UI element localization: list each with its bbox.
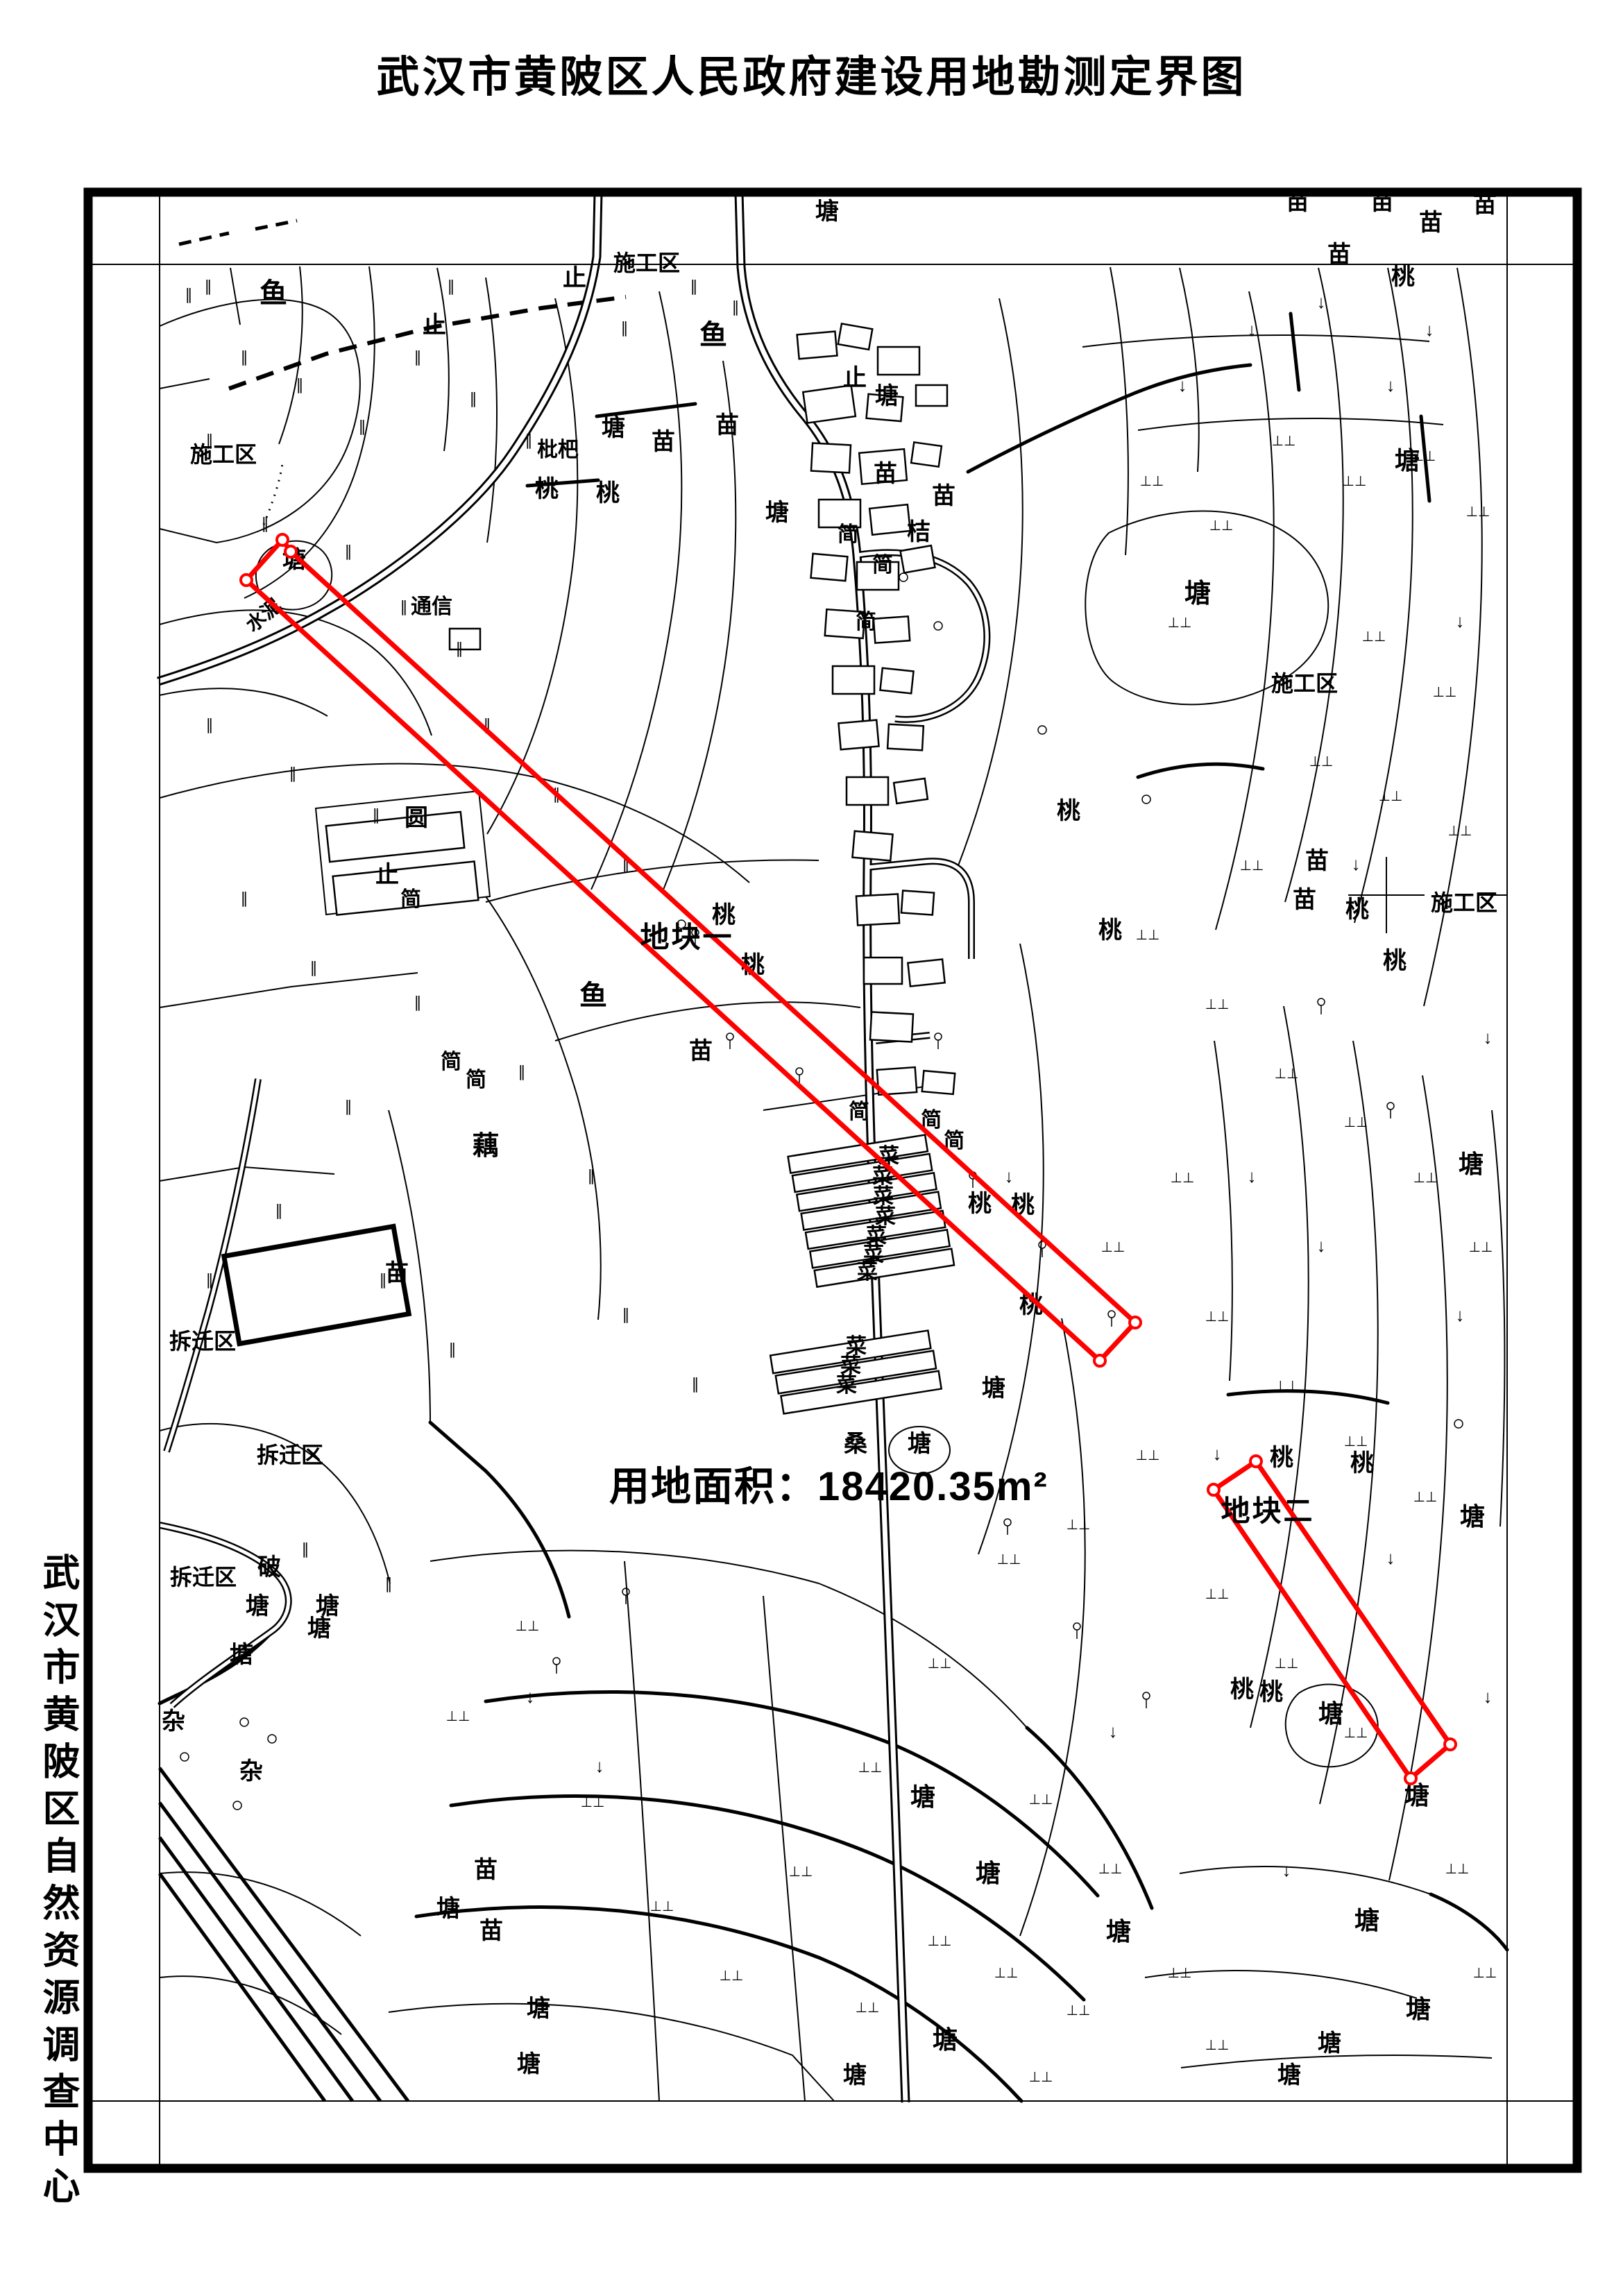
boundary-point-icon bbox=[1250, 1456, 1261, 1467]
map-label: 简 bbox=[856, 610, 876, 633]
arrow-symbol-icon: ↓ bbox=[595, 1755, 604, 1776]
map-label: 苗 bbox=[474, 1857, 498, 1883]
arrow-symbol-icon: ↓ bbox=[1282, 1860, 1291, 1880]
paddy-symbol-icon: ⊥⊥ bbox=[1343, 474, 1367, 489]
map-label: 塘 bbox=[875, 383, 899, 409]
map-label: 鱼 bbox=[579, 980, 607, 1011]
paddy-symbol-icon: ⊥⊥ bbox=[1205, 997, 1230, 1012]
tree-symbol-icon bbox=[726, 1033, 733, 1040]
map-label: 苗 bbox=[932, 483, 955, 509]
map-label: 桃 bbox=[535, 476, 559, 502]
map-label: 桔 bbox=[907, 519, 931, 545]
paddy-symbol-icon: ⊥⊥ bbox=[1067, 2003, 1091, 2018]
paddy-symbol-icon: ⊥⊥ bbox=[1344, 1434, 1368, 1449]
dryland-symbol-icon: ∥ bbox=[385, 1575, 393, 1592]
map-label: 塘 bbox=[910, 1783, 935, 1811]
paddy-symbol-icon: ⊥⊥ bbox=[720, 1968, 744, 1984]
map-label: 桃 bbox=[596, 480, 620, 507]
dryland-symbol-icon: ∥ bbox=[359, 418, 366, 435]
dryland-symbol-icon: ∥ bbox=[296, 376, 304, 393]
map-label: 塘 bbox=[1404, 1781, 1429, 1810]
map-label: 桃 bbox=[1230, 1676, 1254, 1703]
paddy-symbol-icon: ⊥⊥ bbox=[1362, 629, 1386, 645]
map-label: 简 bbox=[441, 1050, 461, 1073]
dryland-symbol-icon: ∥ bbox=[692, 1375, 699, 1393]
paddy-symbol-icon: ⊥⊥ bbox=[1275, 1379, 1299, 1394]
tree-symbol-icon bbox=[935, 1033, 942, 1040]
arrow-symbol-icon: ↓ bbox=[1484, 1027, 1493, 1048]
map-label: 鱼 bbox=[699, 320, 727, 350]
map-label: 止 bbox=[423, 312, 446, 339]
map-label: 苗 bbox=[715, 412, 739, 439]
dryland-symbol-icon: ∥ bbox=[414, 348, 422, 366]
paddy-symbol-icon: ⊥⊥ bbox=[1205, 1587, 1230, 1602]
map-label: 止 bbox=[375, 862, 399, 888]
map-label: 塘 bbox=[230, 1642, 253, 1668]
map-label: 桃 bbox=[1270, 1445, 1293, 1471]
landuse-labels: 鱼止止施工区鱼塘苗苗枇杷桃桃施工区塘通信水泥塘塘止苗苗桔塘简简简塘苗苗苗苗苗桃塘… bbox=[162, 189, 1497, 2089]
boundary-point-icon bbox=[1130, 1317, 1141, 1328]
map-label: 桃 bbox=[1345, 896, 1369, 923]
map-label: 苗 bbox=[874, 461, 897, 487]
tree-symbol-icon bbox=[1073, 1623, 1080, 1630]
arrow-symbol-icon: ↓ bbox=[1005, 1166, 1014, 1187]
map-label: 塘 bbox=[1277, 2062, 1301, 2089]
map-label: 苗 bbox=[1293, 887, 1316, 913]
dryland-symbol-icon: ∥ bbox=[456, 640, 464, 657]
circle-symbol-icon bbox=[1038, 726, 1046, 734]
paddy-symbol-icon: ⊥⊥ bbox=[1140, 474, 1164, 489]
dryland-symbol-icon: ∥ bbox=[310, 959, 318, 976]
dryland-symbol-icon: ∥ bbox=[621, 319, 629, 337]
paddy-symbol-icon: ⊥⊥ bbox=[1275, 1066, 1299, 1082]
map-label: 拆迁区 bbox=[257, 1443, 323, 1468]
circle-symbol-icon bbox=[899, 573, 908, 581]
tree-symbol-icon bbox=[1318, 998, 1325, 1005]
map-label: 塘 bbox=[1406, 1995, 1431, 2023]
map-label: 施工区 bbox=[1271, 671, 1338, 696]
arrow-symbol-icon: ↓ bbox=[1317, 1235, 1326, 1256]
paddy-symbol-icon: ⊥⊥ bbox=[1098, 1862, 1123, 1877]
paddy-symbol-icon: ⊥⊥ bbox=[1473, 1966, 1497, 1981]
map-label: 菜 bbox=[836, 1374, 857, 1397]
dryland-symbol-icon: ∥ bbox=[275, 1202, 283, 1219]
map-label: 塘 bbox=[602, 415, 625, 441]
map-label: 塘 bbox=[436, 1896, 460, 1922]
paddy-symbol-icon: ⊥⊥ bbox=[1379, 789, 1403, 804]
map-label: 塘 bbox=[1318, 1699, 1343, 1728]
arrow-symbol-icon: ↓ bbox=[1425, 319, 1434, 340]
tree-symbol-icon bbox=[553, 1658, 560, 1665]
map-label: 桃 bbox=[968, 1191, 992, 1217]
arrow-symbol-icon: ↓ bbox=[1248, 319, 1257, 340]
paddy-symbol-icon: ⊥⊥ bbox=[994, 1966, 1019, 1981]
paddy-symbol-icon: ⊥⊥ bbox=[1448, 824, 1472, 839]
grid-cross bbox=[1348, 857, 1507, 933]
map-label: 圆 bbox=[405, 805, 428, 831]
map-label: 塘 bbox=[1354, 1906, 1379, 1934]
paddy-symbol-icon: ⊥⊥ bbox=[856, 2000, 880, 2016]
paddy-symbol-icon: ⊥⊥ bbox=[928, 1656, 952, 1672]
paddy-symbol-icon: ⊥⊥ bbox=[1466, 504, 1490, 520]
boundary-point-icon bbox=[1445, 1739, 1456, 1750]
tree-symbol-icon bbox=[622, 1588, 629, 1595]
tree-symbol-icon bbox=[1004, 1519, 1011, 1526]
tree-symbol-icon bbox=[1143, 1692, 1150, 1699]
paddy-symbol-icon: ⊥⊥ bbox=[516, 1619, 540, 1634]
paddy-symbol-icon: ⊥⊥ bbox=[1136, 1448, 1160, 1463]
map-label: 苗 bbox=[652, 429, 675, 455]
dryland-symbol-icon: ∥ bbox=[518, 1063, 526, 1080]
circle-symbol-icon bbox=[1454, 1420, 1463, 1428]
map-label: 塘 bbox=[982, 1375, 1005, 1402]
arrow-symbol-icon: ↓ bbox=[1109, 1721, 1118, 1742]
map-label: 通信 bbox=[411, 595, 452, 618]
boundary-point-icon bbox=[1094, 1355, 1105, 1366]
paddy-symbol-icon: ⊥⊥ bbox=[1413, 1171, 1438, 1186]
dryland-symbol-icon: ∥ bbox=[414, 994, 422, 1011]
arrow-symbol-icon: ↓ bbox=[1213, 1443, 1222, 1464]
map-label: 桃 bbox=[1391, 264, 1415, 290]
paddy-symbol-icon: ⊥⊥ bbox=[1168, 615, 1192, 631]
dryland-symbol-icon: ∥ bbox=[690, 278, 698, 295]
arrow-symbol-icon: ↓ bbox=[1386, 1547, 1395, 1568]
map-label: 苗 bbox=[1305, 848, 1329, 874]
map-label: 塘 bbox=[246, 1593, 269, 1619]
dryland-symbol-icon: ∥ bbox=[302, 1540, 309, 1558]
boundary-point-icon bbox=[277, 534, 288, 545]
arrow-symbol-icon: ↓ bbox=[1248, 1166, 1257, 1187]
paddy-symbol-icon: ⊥⊥ bbox=[1205, 1309, 1230, 1325]
paddy-symbol-icon: ⊥⊥ bbox=[1275, 1656, 1299, 1672]
circle-symbol-icon bbox=[233, 1801, 241, 1810]
map-label: 简 bbox=[849, 1100, 869, 1123]
dryland-symbol-icon: ∥ bbox=[345, 1098, 352, 1115]
dryland-symbol-icon: ∥ bbox=[241, 890, 248, 907]
boundary-point-icon bbox=[1208, 1484, 1219, 1495]
map-label: 枇杷 bbox=[537, 439, 579, 461]
railway-tracks bbox=[160, 1768, 408, 2101]
map-label: 杂 bbox=[162, 1708, 185, 1735]
boundary-point-icon bbox=[241, 575, 252, 586]
circle-symbol-icon bbox=[1142, 795, 1150, 803]
map-label: 菜 bbox=[857, 1261, 878, 1284]
map-label: 桃 bbox=[1350, 1450, 1374, 1477]
paddy-symbol-icon: ⊥⊥ bbox=[650, 1899, 674, 1914]
paddy-symbol-icon: ⊥⊥ bbox=[789, 1864, 813, 1880]
arrow-symbol-icon: ↓ bbox=[1317, 291, 1326, 312]
arrow-symbol-icon: ↓ bbox=[1456, 611, 1465, 631]
paddy-symbol-icon: ⊥⊥ bbox=[1469, 1240, 1493, 1255]
map-label: 塘 bbox=[1459, 1150, 1484, 1178]
paddy-symbol-icon: ⊥⊥ bbox=[1240, 858, 1264, 874]
arrow-symbol-icon: ↓ bbox=[1386, 375, 1395, 396]
plot-label: 地块二 bbox=[1221, 1495, 1314, 1527]
dryland-symbol-icon: ∥ bbox=[373, 806, 380, 824]
dryland-symbol-icon: ∥ bbox=[622, 1306, 630, 1323]
arrow-symbol-icon: ↓ bbox=[1484, 1686, 1493, 1707]
circle-symbol-icon bbox=[180, 1753, 189, 1761]
circle-symbol-icon bbox=[268, 1735, 276, 1743]
map-label: 苗 bbox=[689, 1038, 713, 1064]
map-label: 杂 bbox=[239, 1758, 263, 1785]
dryland-symbol-icon: ∥ bbox=[206, 1271, 214, 1289]
dryland-symbol-icon: ∥ bbox=[400, 598, 408, 615]
dryland-symbol-icon: ∥ bbox=[345, 543, 352, 560]
dryland-symbol-icon: ∥ bbox=[241, 348, 248, 366]
map-label: 破 bbox=[257, 1554, 281, 1581]
map-label: 塘 bbox=[908, 1431, 931, 1457]
boundary-point-icon bbox=[1405, 1773, 1416, 1784]
arrow-symbol-icon: ↓ bbox=[1352, 853, 1361, 874]
dryland-symbol-icon: ∥ bbox=[262, 515, 269, 532]
dryland-symbol-icon: ∥ bbox=[289, 765, 297, 782]
map-label: 止 bbox=[563, 265, 586, 291]
tree-symbol-icon bbox=[1387, 1103, 1394, 1109]
survey-map: ⊥⊥⊥⊥⊥⊥⊥⊥⊥⊥⊥⊥⊥⊥⊥⊥⊥⊥⊥⊥⊥⊥⊥⊥⊥⊥⊥⊥⊥⊥⊥⊥⊥⊥⊥⊥⊥⊥⊥⊥… bbox=[0, 0, 1623, 2296]
circle-symbol-icon bbox=[934, 622, 942, 630]
paddy-symbol-icon: ⊥⊥ bbox=[1067, 1517, 1091, 1533]
map-label: 苗 bbox=[1419, 210, 1443, 236]
map-label: 施工区 bbox=[613, 250, 680, 275]
paddy-symbol-icon: ⊥⊥ bbox=[1433, 685, 1457, 700]
paddy-symbol-icon: ⊥⊥ bbox=[1168, 1966, 1192, 1981]
field-accent-lines bbox=[160, 314, 1507, 2101]
dryland-symbol-icon: ∥ bbox=[470, 390, 477, 407]
plot-label: 地块一 bbox=[640, 921, 733, 953]
paddy-symbol-icon: ⊥⊥ bbox=[858, 1760, 883, 1776]
paddy-symbol-icon: ⊥⊥ bbox=[1344, 1115, 1368, 1130]
map-label: 塘 bbox=[933, 2025, 958, 2054]
paddy-symbol-icon: ⊥⊥ bbox=[1272, 434, 1296, 449]
circle-symbol-icon bbox=[240, 1718, 248, 1726]
map-label: 苗 bbox=[385, 1260, 409, 1286]
map-label: 鱼 bbox=[260, 278, 287, 309]
map-label: 止 bbox=[843, 365, 867, 391]
paddy-symbol-icon: ⊥⊥ bbox=[1344, 1726, 1368, 1741]
map-label: 桑 bbox=[844, 1431, 867, 1457]
map-label: 塘 bbox=[765, 500, 789, 526]
paddy-symbol-icon: ⊥⊥ bbox=[1445, 1862, 1470, 1877]
map-label: 藕 bbox=[473, 1132, 499, 1161]
area-annotation: 用地面积：18420.35m² bbox=[609, 1464, 1048, 1509]
paddy-symbol-icon: ⊥⊥ bbox=[1205, 2038, 1230, 2053]
dryland-symbol-icon: ∥ bbox=[449, 1341, 457, 1358]
dryland-symbol-icon: ∥ bbox=[185, 286, 193, 303]
map-label: 塘 bbox=[1106, 1917, 1131, 1946]
paddy-symbol-icon: ⊥⊥ bbox=[1029, 2070, 1053, 2085]
paddy-symbol-icon: ⊥⊥ bbox=[1136, 928, 1160, 943]
map-label: 塘 bbox=[307, 1615, 331, 1642]
paddy-symbol-icon: ⊥⊥ bbox=[1029, 1792, 1053, 1808]
dryland-symbol-icon: ∥ bbox=[732, 298, 740, 316]
map-label: 简 bbox=[872, 553, 893, 577]
map-label: 塘 bbox=[815, 198, 839, 225]
map-label: 拆迁区 bbox=[170, 1565, 237, 1590]
boundary-point-icon bbox=[285, 546, 296, 557]
map-label: 桃 bbox=[1057, 798, 1080, 824]
map-label: 塘 bbox=[1460, 1502, 1485, 1531]
map-label: 桃 bbox=[1259, 1679, 1283, 1706]
map-label: 塘 bbox=[843, 2062, 867, 2089]
map-label: 简 bbox=[466, 1068, 486, 1091]
map-label: 塘 bbox=[527, 1996, 550, 2022]
arrow-symbol-icon: ↓ bbox=[1178, 375, 1187, 396]
map-label: 桃 bbox=[1098, 917, 1122, 944]
dryland-symbol-icon: ∥ bbox=[206, 716, 214, 733]
paddy-symbol-icon: ⊥⊥ bbox=[1309, 754, 1334, 769]
map-label: 拆迁区 bbox=[169, 1329, 236, 1354]
paddy-symbol-icon: ⊥⊥ bbox=[1171, 1171, 1195, 1186]
map-label: 塘 bbox=[976, 1859, 1001, 1887]
paddy-symbol-icon: ⊥⊥ bbox=[997, 1552, 1021, 1567]
map-label: 塘 bbox=[1395, 446, 1420, 475]
tree-symbol-icon bbox=[796, 1068, 803, 1075]
map-label: 塘 bbox=[517, 2051, 541, 2077]
map-label: 苗 bbox=[479, 1918, 503, 1944]
paddy-symbol-icon: ⊥⊥ bbox=[581, 1795, 605, 1810]
map-label: 桃 bbox=[1383, 948, 1407, 974]
map-label: 水泥 bbox=[241, 595, 285, 636]
map-content: ⊥⊥⊥⊥⊥⊥⊥⊥⊥⊥⊥⊥⊥⊥⊥⊥⊥⊥⊥⊥⊥⊥⊥⊥⊥⊥⊥⊥⊥⊥⊥⊥⊥⊥⊥⊥⊥⊥⊥⊥… bbox=[158, 189, 1507, 2102]
dryland-symbol-icon: ∥ bbox=[525, 432, 533, 449]
dryland-symbol-icon: ∥ bbox=[448, 278, 455, 295]
paddy-symbol-icon: ⊥⊥ bbox=[446, 1709, 470, 1724]
arrow-symbol-icon: ↓ bbox=[526, 1686, 535, 1707]
map-label: 塘 bbox=[1318, 2030, 1341, 2057]
map-label: 简 bbox=[400, 887, 421, 911]
map-label: 简 bbox=[838, 522, 858, 546]
map-label: 施工区 bbox=[1431, 890, 1497, 915]
paddy-symbol-icon: ⊥⊥ bbox=[928, 1934, 952, 1949]
dryland-symbol-icon: ∥ bbox=[205, 278, 212, 295]
dryland-symbol-icon: ∥ bbox=[588, 1167, 595, 1184]
paddy-symbol-icon: ⊥⊥ bbox=[1209, 518, 1234, 534]
arrow-symbol-icon: ↓ bbox=[1456, 1304, 1465, 1325]
paddy-symbol-icon: ⊥⊥ bbox=[1101, 1240, 1125, 1255]
tree-symbol-icon bbox=[1108, 1311, 1115, 1318]
map-label: 施工区 bbox=[190, 442, 257, 467]
map-label: 塘 bbox=[1184, 579, 1211, 609]
paddy-symbol-icon: ⊥⊥ bbox=[1413, 1490, 1438, 1505]
